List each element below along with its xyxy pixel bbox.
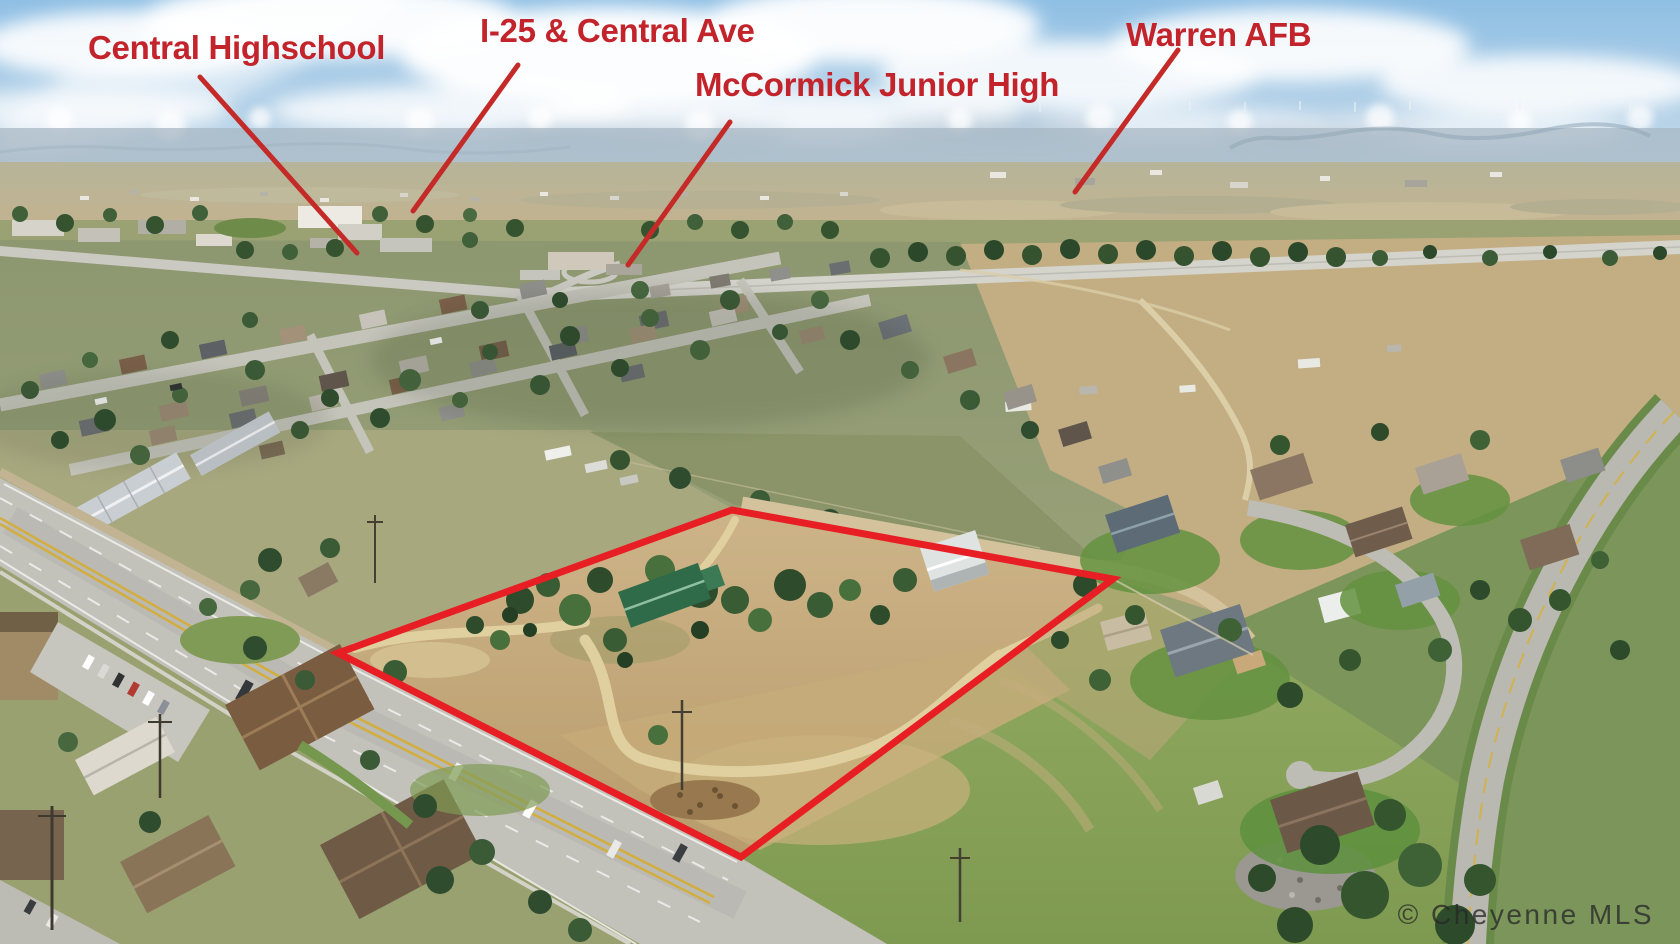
property-boundary <box>338 510 1113 857</box>
pointer-line-warren-afb <box>1075 50 1178 192</box>
mls-watermark: © Cheyenne MLS <box>1398 899 1654 931</box>
pointer-line-i25-central-ave <box>413 65 518 211</box>
label-central-highschool: Central Highschool <box>88 31 385 64</box>
label-mccormick-junior-high: McCormick Junior High <box>695 68 1059 101</box>
label-warren-afb: Warren AFB <box>1126 18 1311 51</box>
pointer-line-central-highschool <box>200 77 357 253</box>
annotation-overlay <box>0 0 1680 944</box>
pointer-line-mccormick-junior-high <box>628 122 730 265</box>
label-i25-central-ave: I-25 & Central Ave <box>480 14 755 47</box>
